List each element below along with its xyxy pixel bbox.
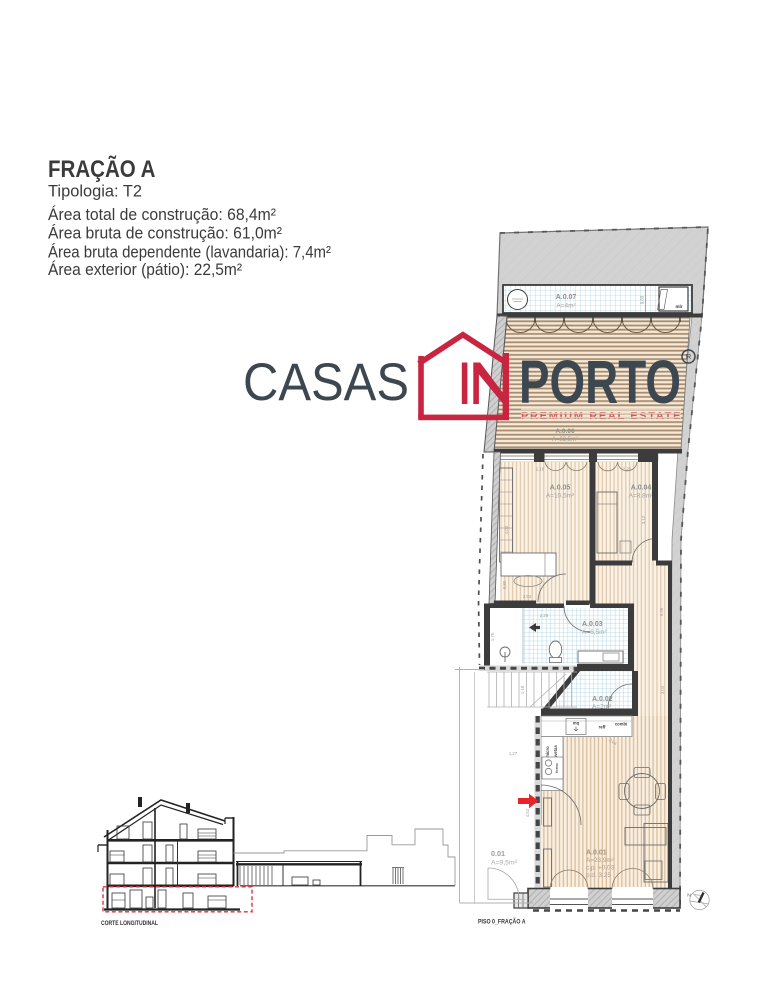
svg-text:0.01: 0.01 (491, 849, 505, 858)
svg-text:R: R (686, 352, 692, 361)
svg-text:CASAS: CASAS (243, 353, 409, 412)
svg-text:Área bruta dependente (lavanda: Área bruta dependente (lavandaria): 7,4m… (48, 242, 331, 261)
svg-text:3,04: 3,04 (660, 685, 665, 694)
svg-text:CORTE LONGITUDINAL: CORTE LONGITUDINAL (101, 921, 158, 927)
svg-text:2,18: 2,18 (536, 467, 545, 472)
svg-text:2,29: 2,29 (540, 613, 549, 618)
svg-text:Área bruta de construção: 61,0: Área bruta de construção: 61,0m² (48, 223, 282, 242)
svg-text:A=6,5m²: A=6,5m² (582, 629, 608, 636)
svg-text:2,53: 2,53 (523, 594, 532, 599)
svg-text:A=23,9m²: A=23,9m² (586, 857, 614, 864)
svg-text:PREMIUM REAL ESTATE: PREMIUM REAL ESTATE (521, 410, 682, 422)
svg-text:2,20: 2,20 (623, 467, 632, 472)
svg-text:Área exterior (pátio): 22,5m²: Área exterior (pátio): 22,5m² (48, 260, 242, 279)
svg-text:A.0.07: A.0.07 (556, 294, 577, 301)
svg-text:FRAÇÃO A: FRAÇÃO A (48, 155, 156, 183)
svg-text:1,76: 1,76 (490, 632, 495, 641)
svg-text:A=4m²: A=4m² (556, 303, 576, 310)
svg-text:A=22,5m²: A=22,5m² (552, 437, 578, 443)
svg-text:micro: micro (545, 746, 550, 758)
svg-text:c.p. +0,03: c.p. +0,03 (586, 865, 615, 872)
svg-text:A.0.04: A.0.04 (631, 485, 652, 492)
svg-text:Tipologia: T2: Tipologia: T2 (48, 182, 142, 201)
svg-text:mlr: mlr (675, 304, 682, 309)
svg-text:4,52: 4,52 (525, 808, 530, 817)
svg-text:mq: mq (573, 721, 580, 726)
svg-text:A.0.06: A.0.06 (555, 428, 575, 435)
svg-text:1,19: 1,19 (520, 685, 525, 694)
svg-text:p.d. 3,25: p.d. 3,25 (586, 872, 611, 879)
svg-text:A=9,5m²: A=9,5m² (491, 860, 518, 867)
svg-text:reff: reff (599, 725, 606, 730)
svg-text:A.0.01: A.0.01 (586, 850, 607, 857)
svg-text:A.0.03: A.0.03 (582, 621, 603, 628)
svg-text:6,36: 6,36 (659, 607, 664, 616)
svg-text:combi: combi (615, 722, 627, 727)
svg-text:PORTO: PORTO (519, 348, 681, 416)
svg-text:A=8,8m²: A=8,8m² (629, 493, 655, 500)
svg-text:A.0.05: A.0.05 (550, 485, 571, 492)
svg-text:1,27: 1,27 (509, 751, 518, 756)
svg-text:PISO 0_FRAÇÃO A: PISO 0_FRAÇÃO A (478, 919, 526, 926)
svg-text:8,80: 8,80 (502, 580, 507, 589)
svg-text:Área total de construção: 68,4: Área total de construção: 68,4m² (48, 205, 276, 224)
svg-text:0,33: 0,33 (640, 295, 645, 304)
svg-text:N: N (687, 893, 691, 899)
svg-text:4,03: 4,03 (504, 525, 509, 534)
svg-text:3,12: 3,12 (641, 515, 646, 524)
svg-text:forno: forno (555, 762, 559, 772)
svg-text:A=10,5m²: A=10,5m² (546, 493, 575, 500)
